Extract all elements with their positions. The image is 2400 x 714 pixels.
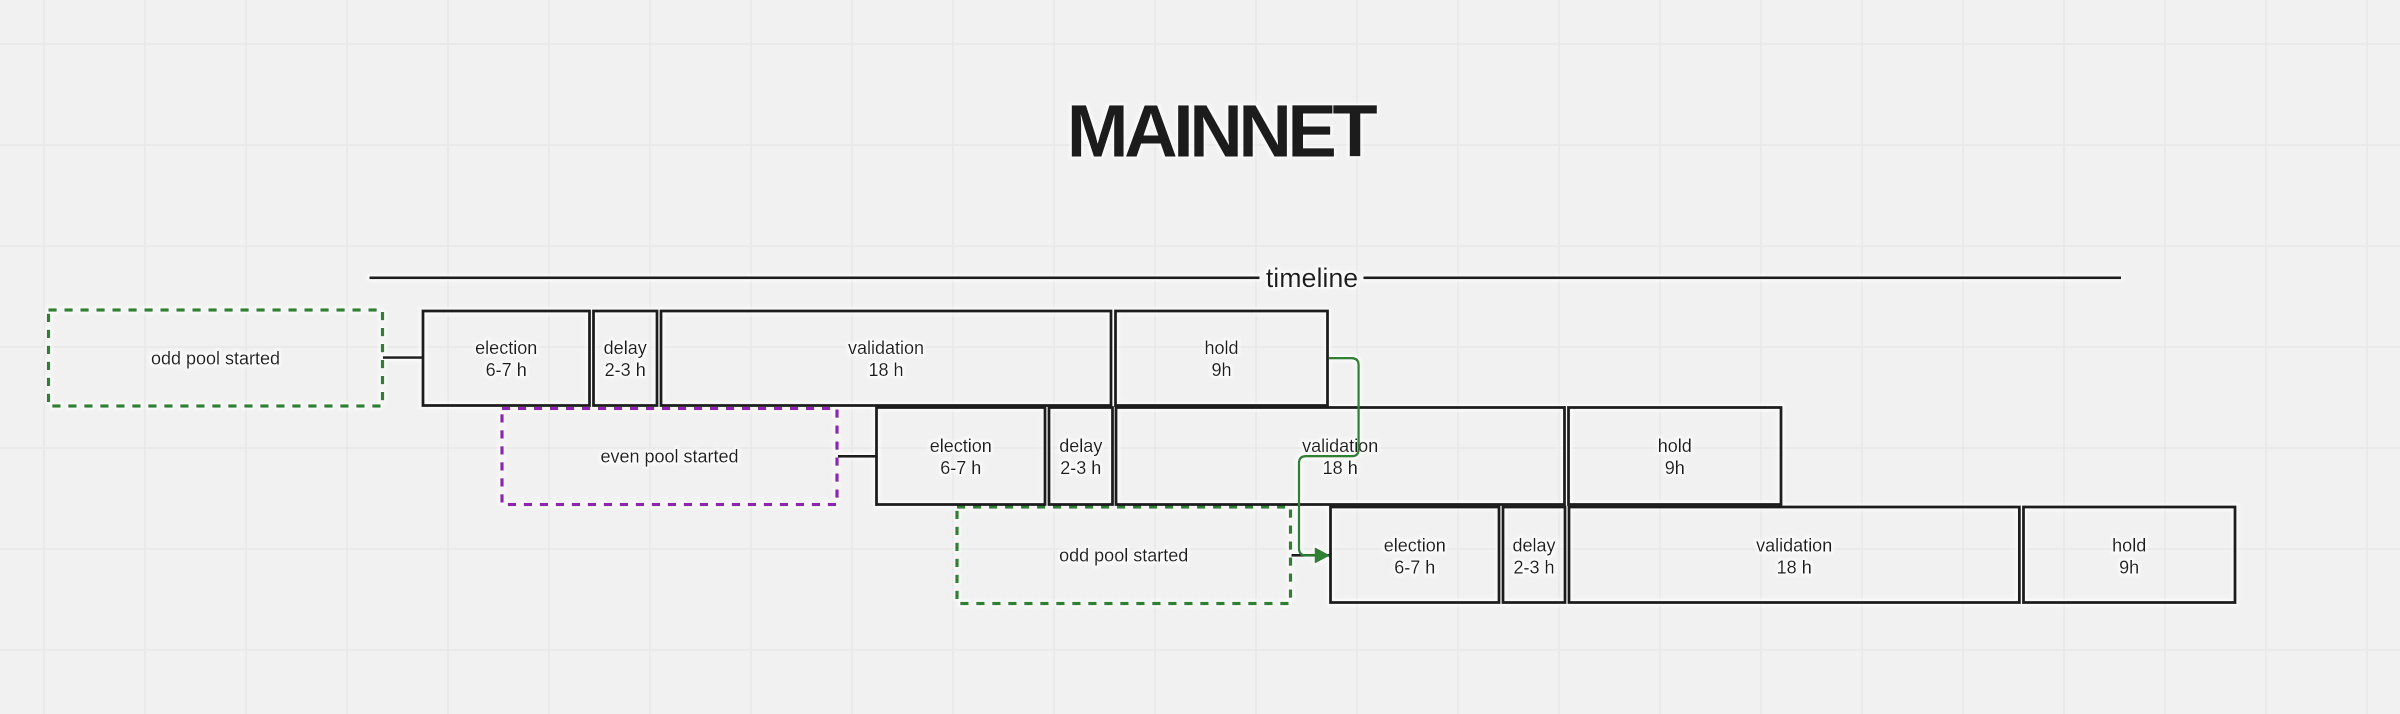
- svg-text:election: election: [475, 338, 537, 358]
- svg-text:9h: 9h: [1211, 360, 1231, 380]
- svg-text:18 h: 18 h: [1777, 558, 1812, 578]
- svg-text:6-7 h: 6-7 h: [486, 360, 527, 380]
- svg-text:MAINNET: MAINNET: [1067, 90, 1378, 173]
- svg-text:9h: 9h: [2119, 558, 2139, 578]
- svg-text:odd pool started: odd pool started: [1059, 546, 1188, 566]
- svg-text:delay: delay: [1512, 536, 1555, 556]
- svg-text:18 h: 18 h: [868, 360, 903, 380]
- svg-text:hold: hold: [1658, 436, 1692, 456]
- svg-text:election: election: [1384, 536, 1446, 556]
- svg-text:delay: delay: [604, 338, 647, 358]
- svg-text:hold: hold: [2112, 536, 2146, 556]
- svg-text:election: election: [930, 436, 992, 456]
- svg-text:validation: validation: [1302, 436, 1378, 456]
- svg-text:delay: delay: [1059, 436, 1102, 456]
- svg-text:hold: hold: [1204, 338, 1238, 358]
- svg-text:2-3 h: 2-3 h: [1513, 558, 1554, 578]
- svg-text:validation: validation: [848, 338, 924, 358]
- svg-text:validation: validation: [1756, 536, 1832, 556]
- svg-text:odd pool started: odd pool started: [151, 348, 280, 368]
- svg-text:9h: 9h: [1665, 458, 1685, 478]
- svg-text:2-3 h: 2-3 h: [1060, 458, 1101, 478]
- svg-text:timeline: timeline: [1266, 263, 1358, 293]
- svg-text:18 h: 18 h: [1323, 458, 1358, 478]
- svg-text:even pool started: even pool started: [600, 447, 738, 467]
- svg-text:2-3 h: 2-3 h: [605, 360, 646, 380]
- svg-text:6-7 h: 6-7 h: [1394, 558, 1435, 578]
- svg-text:6-7 h: 6-7 h: [940, 458, 981, 478]
